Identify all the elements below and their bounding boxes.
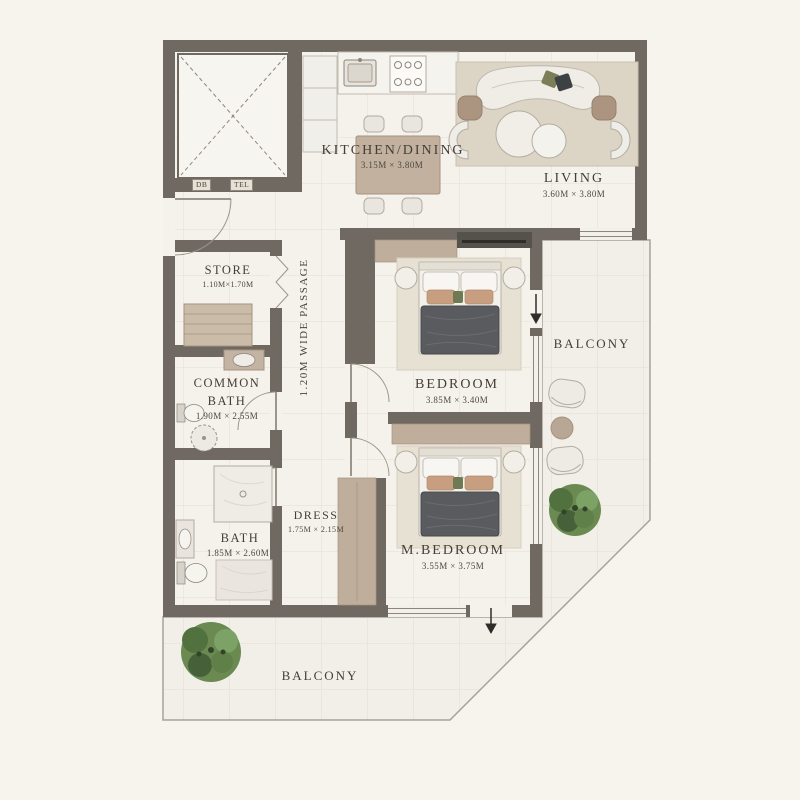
marble-floor — [216, 560, 272, 600]
living-dims: 3.60M × 3.80M — [543, 189, 605, 199]
store-shelf-symbol — [184, 304, 252, 346]
bedroom-dims: 3.85M × 3.40M — [426, 395, 488, 405]
balcony-right-label: BALCONY — [554, 336, 631, 352]
coffee-table-small — [532, 124, 566, 158]
common-bath-dims: 1.90M × 2.55M — [194, 410, 261, 423]
nightstand — [503, 267, 525, 289]
bed-symbol-master — [395, 446, 525, 548]
living-furniture — [449, 62, 638, 166]
bath-label: BATH — [221, 531, 260, 546]
master-bedroom-label: M.BEDROOM — [401, 543, 505, 559]
plant-symbol-bottom — [181, 622, 241, 682]
nightstand — [395, 451, 417, 473]
dress-dims: 1.75M × 2.15M — [288, 525, 344, 534]
plant-symbol-right — [549, 484, 601, 536]
side-table-right — [592, 96, 616, 120]
balcony-bottom-label: BALCONY — [282, 668, 359, 684]
common-bath-line2: BATH — [194, 392, 261, 410]
store-dims: 1.10M×1.70M — [202, 280, 253, 289]
store-label: STORE — [205, 263, 252, 278]
bath-dims: 1.85M × 2.60M — [207, 548, 269, 558]
balcony-table — [551, 417, 573, 439]
common-bath-label: COMMON BATH 1.90M × 2.55M — [194, 374, 261, 423]
kitchen-dining-dims: 3.15M × 3.80M — [361, 160, 423, 170]
dress-label: DRESS — [294, 508, 339, 523]
shaft-symbol — [178, 54, 288, 178]
side-table-left — [458, 96, 482, 120]
db-tag: DB — [192, 179, 211, 191]
balcony-chair — [546, 445, 585, 476]
stove-symbol — [390, 56, 426, 92]
passage-label: 1.20M WIDE PASSAGE — [298, 235, 310, 420]
living-label: LIVING — [544, 171, 604, 187]
kitchen-dining-label: KITCHEN/DINING — [321, 143, 464, 159]
master-bedroom-dims: 3.55M × 3.75M — [422, 561, 484, 571]
bed-symbol-bedroom — [395, 258, 525, 370]
tel-tag: TEL — [230, 179, 253, 191]
floor-plan: KITCHEN/DINING 3.15M × 3.80M LIVING 3.60… — [0, 0, 800, 800]
common-bath-line1: COMMON — [194, 374, 261, 392]
plan-graphics — [0, 0, 800, 800]
bath-toilet-symbol — [177, 562, 207, 584]
bedroom-label: BEDROOM — [415, 377, 499, 393]
nightstand — [395, 267, 417, 289]
shower-symbol — [214, 466, 272, 522]
nightstand — [503, 451, 525, 473]
sink-symbol — [344, 58, 376, 86]
